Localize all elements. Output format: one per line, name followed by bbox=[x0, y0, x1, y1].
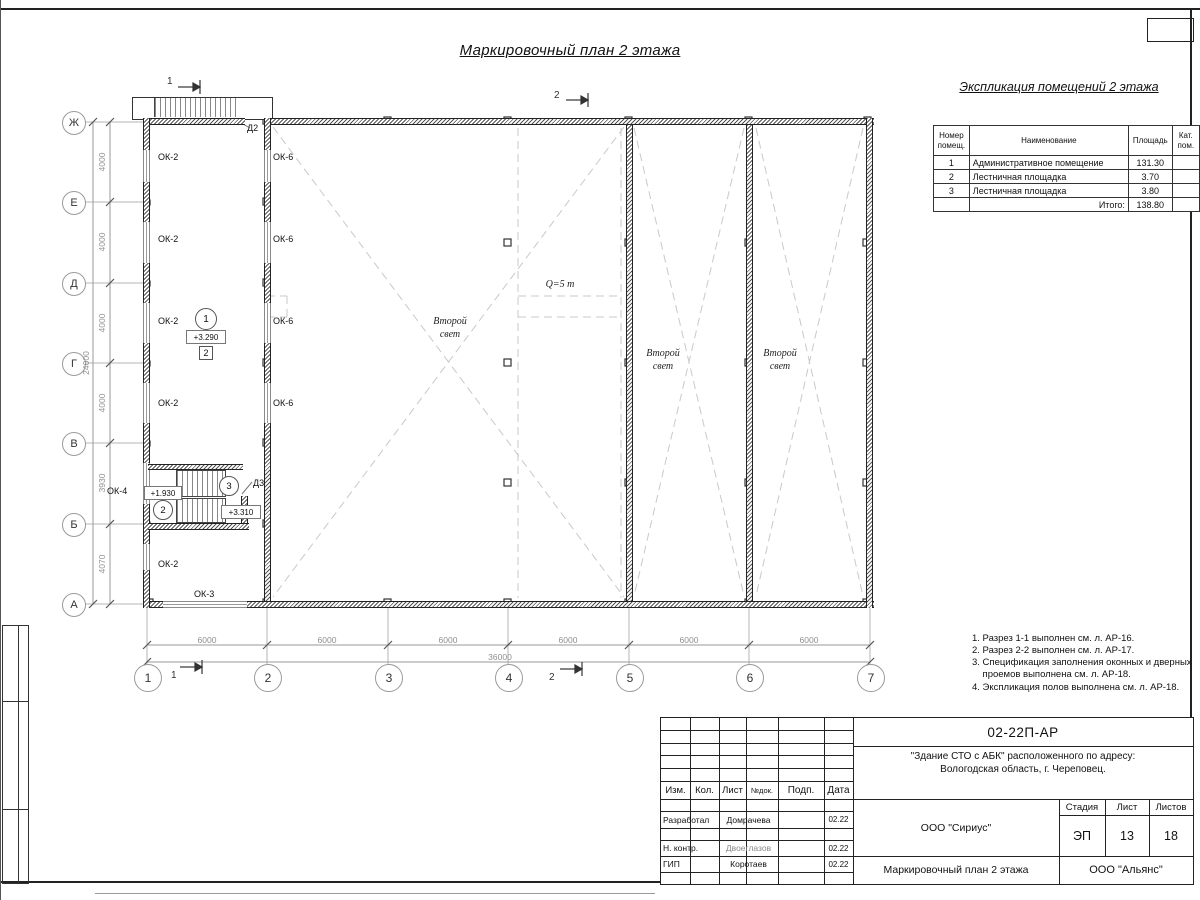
window-label-ok6: ОК-6 bbox=[273, 152, 293, 162]
legend-header-row: Номер помещ. Наименование Площадь Кат. п… bbox=[934, 126, 1200, 156]
window-label-ok6: ОК-6 bbox=[273, 316, 293, 326]
section-mark-1: 1 bbox=[171, 670, 177, 681]
axis-row-v: В bbox=[62, 432, 86, 456]
name-ncontrol: Двоеглазов bbox=[719, 840, 778, 856]
elevation-mark-room1: +3.290 bbox=[186, 330, 226, 344]
col-kol: Кол. bbox=[690, 781, 719, 799]
section-mark-1: 1 bbox=[167, 76, 173, 87]
tb-hline bbox=[661, 872, 853, 873]
axis-col-3: 3 bbox=[375, 664, 403, 692]
door-label-d3: Д3 bbox=[253, 478, 264, 488]
doc-number: 02-22П-АР bbox=[853, 718, 1193, 746]
dim-6000: 6000 bbox=[418, 635, 478, 645]
project-address-line1: "Здание СТО с АБК" расположенного по адр… bbox=[853, 749, 1193, 763]
wall-left-pier bbox=[143, 343, 150, 383]
room-name: Административное помещение bbox=[969, 156, 1128, 170]
tb-hline bbox=[661, 828, 853, 829]
wall-left-pier bbox=[143, 182, 150, 222]
tb-hline bbox=[661, 755, 853, 756]
window-label-ok2: ОК-2 bbox=[158, 559, 178, 569]
window-label-ok2: ОК-2 bbox=[158, 398, 178, 408]
axis-row-e: Е bbox=[62, 191, 86, 215]
col-ndok: №док. bbox=[746, 781, 778, 799]
legend-row: 2 Лестничная площадка 3.70 bbox=[934, 170, 1200, 184]
axis-row-zh: Ж bbox=[62, 111, 86, 135]
axis-col-7: 7 bbox=[857, 664, 885, 692]
tb-hline bbox=[853, 746, 1193, 747]
room-category bbox=[1172, 156, 1199, 170]
room-name: Лестничная площадка bbox=[969, 170, 1128, 184]
wall-axis2-lower bbox=[264, 423, 271, 601]
dim-6000: 6000 bbox=[659, 635, 719, 645]
window-label-ok2: ОК-2 bbox=[158, 316, 178, 326]
second-light-label: Второй свет bbox=[744, 348, 816, 373]
section-mark-2: 2 bbox=[549, 672, 555, 683]
legend-header-area: Площадь bbox=[1128, 126, 1172, 156]
wall-left-pier bbox=[143, 263, 150, 303]
tb-hline bbox=[661, 768, 853, 769]
elevation-mark-landing: +1.930 bbox=[144, 486, 182, 500]
window-label-ok6: ОК-6 bbox=[273, 234, 293, 244]
date-ncontrol: 02.22 bbox=[824, 840, 853, 856]
second-light-label: Второй свет bbox=[627, 348, 699, 373]
dim-total-24000: 24000 bbox=[81, 335, 91, 391]
room-number: 1 bbox=[934, 156, 970, 170]
note-1: 1. Разрез 1-1 выполнен см. л. АР-16. bbox=[972, 633, 1200, 645]
note-2: 2. Разрез 2-2 выполнен см. л. АР-17. bbox=[972, 645, 1200, 657]
wall-axis2-pier bbox=[264, 263, 271, 303]
window-label-ok4: ОК-4 bbox=[107, 486, 127, 496]
design-org: ООО "Сириус" bbox=[853, 799, 1059, 856]
sheet-number: 13 bbox=[1105, 815, 1149, 856]
legend-total-empty bbox=[934, 198, 970, 212]
wall-bottom bbox=[247, 601, 874, 608]
col-podp: Подп. bbox=[778, 781, 824, 799]
legend-total-label: Итого: bbox=[969, 198, 1128, 212]
legend-header-num: Номер помещ. bbox=[934, 126, 970, 156]
role-ncontrol: Н. контр. bbox=[663, 840, 719, 856]
room-category bbox=[1172, 184, 1199, 198]
window-label-ok3: ОК-3 bbox=[194, 589, 214, 599]
col-data: Дата bbox=[824, 781, 853, 799]
stage-label: Стадия bbox=[1059, 799, 1105, 815]
sheets-total: 18 bbox=[1149, 815, 1193, 856]
legend-total-row: Итого: 138.80 bbox=[934, 198, 1200, 212]
sheet-notes: 1. Разрез 1-1 выполнен см. л. АР-16. 2. … bbox=[972, 633, 1200, 694]
window-ok3 bbox=[163, 601, 247, 608]
sheet-label: Лист bbox=[1105, 799, 1149, 815]
dim-4000: 4000 bbox=[97, 375, 107, 431]
axis-col-5: 5 bbox=[616, 664, 644, 692]
name-developer: Домрачева bbox=[719, 811, 778, 828]
note-4: 4. Экспликация полов выполнена см. л. АР… bbox=[972, 682, 1200, 694]
dim-6000: 6000 bbox=[297, 635, 357, 645]
crane-capacity-label: Q=5 т bbox=[532, 279, 588, 292]
sheets-label: Листов bbox=[1149, 799, 1193, 815]
wall-top-left bbox=[143, 118, 245, 125]
legend-header-cat: Кат. пом. bbox=[1172, 126, 1199, 156]
wall-top-right bbox=[267, 118, 874, 125]
room-marker-1: 1 bbox=[195, 308, 217, 330]
name-gip: Коротаев bbox=[719, 856, 778, 872]
stair-flight-lower bbox=[176, 498, 226, 523]
section-mark-2: 2 bbox=[554, 90, 560, 101]
axis-row-b: Б bbox=[62, 513, 86, 537]
customer-org: ООО "Альянс" bbox=[1059, 856, 1193, 884]
second-light-label: Второй свет bbox=[410, 316, 490, 341]
axis-col-6: 6 bbox=[736, 664, 764, 692]
dim-4000: 4000 bbox=[97, 134, 107, 190]
legend-row: 3 Лестничная площадка 3.80 bbox=[934, 184, 1200, 198]
room-marker-3: 3 bbox=[219, 476, 239, 496]
window-label-ok6: ОК-6 bbox=[273, 398, 293, 408]
col-list: Лист bbox=[719, 781, 746, 799]
date-developer: 02.22 bbox=[824, 811, 853, 828]
dim-4000: 4000 bbox=[97, 295, 107, 351]
window-label-ok2: ОК-2 bbox=[158, 152, 178, 162]
dim-total-36000: 36000 bbox=[470, 652, 530, 662]
col-izm: Изм. bbox=[661, 781, 690, 799]
axis-col-4: 4 bbox=[495, 664, 523, 692]
project-address-line2: Вологодская область, г. Череповец. bbox=[853, 762, 1193, 776]
dim-4000: 4000 bbox=[97, 214, 107, 270]
legend-total-cat bbox=[1172, 198, 1199, 212]
drawing-title: Маркировочный план 2 этажа bbox=[853, 856, 1059, 884]
dim-4070: 4070 bbox=[97, 536, 107, 592]
legend-header-name: Наименование bbox=[969, 126, 1128, 156]
date-gip: 02.22 bbox=[824, 856, 853, 872]
room-area: 3.80 bbox=[1128, 184, 1172, 198]
room-name: Лестничная площадка bbox=[969, 184, 1128, 198]
legend-row: 1 Административное помещение 131.30 bbox=[934, 156, 1200, 170]
room-marker-2: 2 bbox=[153, 500, 173, 520]
dim-6000: 6000 bbox=[177, 635, 237, 645]
axis-col-2: 2 bbox=[254, 664, 282, 692]
room-area: 3.70 bbox=[1128, 170, 1172, 184]
tb-hline bbox=[661, 730, 853, 731]
floor-type-mark: 2 bbox=[199, 346, 213, 360]
axis-col-1: 1 bbox=[134, 664, 162, 692]
wall-left-pier bbox=[143, 423, 150, 463]
axis-row-d: Д bbox=[62, 272, 86, 296]
room-number: 2 bbox=[934, 170, 970, 184]
room-legend-table: Номер помещ. Наименование Площадь Кат. п… bbox=[933, 125, 1200, 212]
door-label-d2: Д2 bbox=[247, 123, 258, 133]
wall-axis2-pier bbox=[264, 343, 271, 383]
wall-axis2-pier bbox=[264, 182, 271, 222]
dim-6000: 6000 bbox=[779, 635, 839, 645]
elevation-mark-upper: +3.310 bbox=[221, 505, 261, 519]
exterior-stair-treads bbox=[154, 98, 237, 117]
wall-axis7 bbox=[866, 118, 873, 608]
window-label-ok2: ОК-2 bbox=[158, 234, 178, 244]
role-gip: ГИП bbox=[663, 856, 719, 872]
drawing-sheet: Маркировочный план 2 этажа bbox=[0, 0, 1200, 900]
wall-axis2-pier bbox=[264, 118, 271, 150]
note-3: 3. Спецификация заполнения оконных и две… bbox=[972, 657, 1200, 681]
dim-3930: 3930 bbox=[97, 455, 107, 511]
axis-row-a: А bbox=[62, 593, 86, 617]
stage-value: ЭП bbox=[1059, 815, 1105, 856]
title-block: 02-22П-АР "Здание СТО с АБК" расположенн… bbox=[660, 717, 1194, 885]
role-developer: Разработал bbox=[663, 811, 719, 828]
room-number: 3 bbox=[934, 184, 970, 198]
tb-hline bbox=[661, 743, 853, 744]
wall-left-pier bbox=[143, 118, 150, 150]
legend-title: Экспликация помещений 2 этажа bbox=[930, 80, 1188, 94]
dim-6000: 6000 bbox=[538, 635, 598, 645]
stair-enclosure-bottom-wall bbox=[148, 523, 249, 530]
legend-total-value: 138.80 bbox=[1128, 198, 1172, 212]
room-area: 131.30 bbox=[1128, 156, 1172, 170]
room-category bbox=[1172, 170, 1199, 184]
wall-left-pier bbox=[143, 570, 150, 608]
